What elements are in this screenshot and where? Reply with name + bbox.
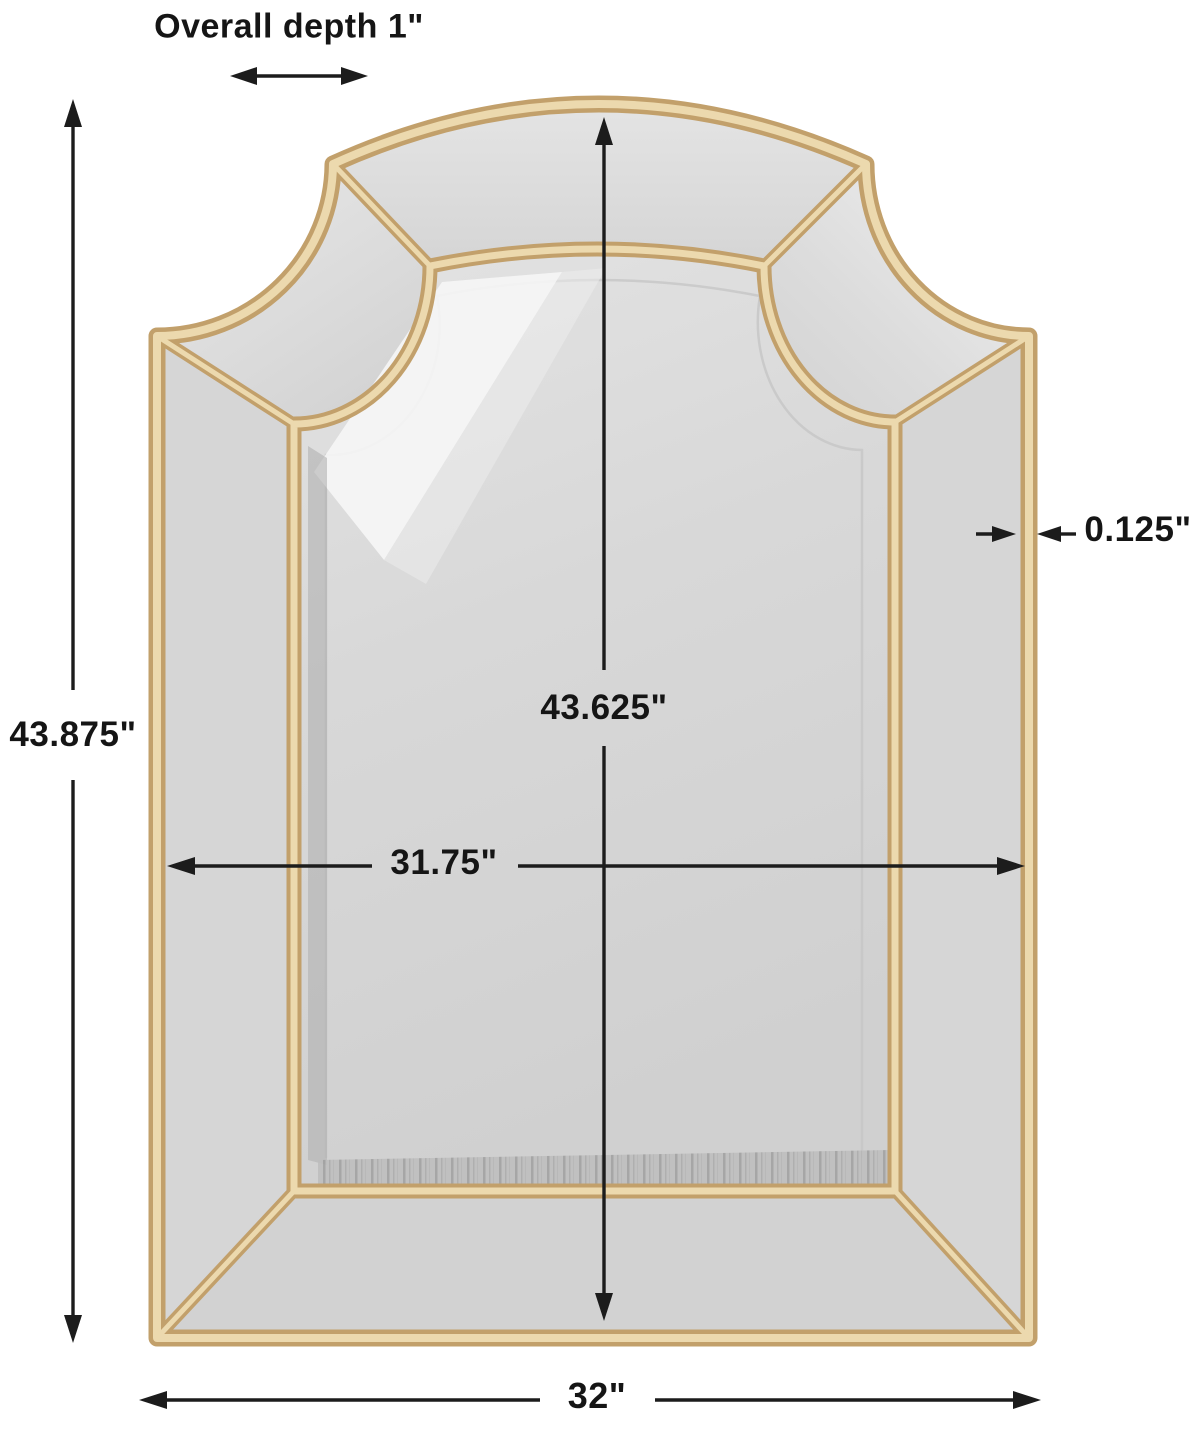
overall-height-label: 43.875"	[9, 715, 136, 755]
depth-arrowhead-left	[230, 67, 257, 85]
mirror-height-label: 43.625"	[540, 688, 667, 728]
mirror-width-label: 31.75"	[390, 843, 497, 883]
thickness-arrowhead-left	[1037, 526, 1061, 542]
frame-thickness-label: 0.125"	[1084, 510, 1191, 550]
width-arrowhead-left	[139, 1391, 167, 1409]
width-arrowhead-right	[1013, 1391, 1041, 1409]
dimension-diagram: Overall depth 1" 43.875" 43.625" 31.75" …	[0, 0, 1200, 1437]
overall-depth-label: Overall depth 1"	[154, 8, 424, 47]
height-arrowhead-bottom	[64, 1315, 82, 1343]
overall-width-label: 32"	[568, 1375, 627, 1417]
bottom-border-panel	[157, 1191, 1029, 1338]
bevel-shadow-left	[308, 446, 327, 1165]
depth-arrowhead-right	[341, 67, 368, 85]
height-arrowhead-top	[64, 99, 82, 127]
